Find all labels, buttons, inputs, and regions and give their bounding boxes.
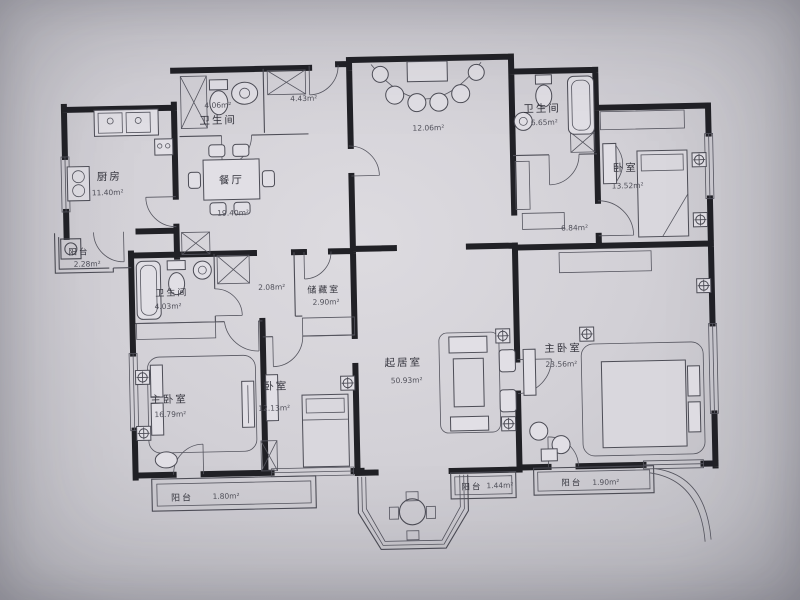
pillow-icon — [687, 366, 700, 396]
room-label-balcony-br: 阳台 — [561, 477, 582, 488]
room-label-kitchen: 厨房 — [97, 170, 122, 184]
room-area-balcony-br: 1.90m² — [592, 477, 619, 487]
room-label-bath-right: 卫生间 — [523, 102, 561, 116]
room-area-bath-mid: 4.03m² — [154, 302, 181, 312]
toilet-tank-icon — [209, 80, 227, 90]
stool-icon — [155, 452, 177, 468]
chair-icon — [530, 422, 548, 440]
sofa-seat-icon — [449, 336, 487, 353]
room-area-bedroom-mid: 12.13m² — [258, 403, 290, 413]
room-area-storage: 2.90m² — [312, 297, 339, 307]
room-label-bedroom-right: 卧室 — [613, 161, 638, 175]
stool-icon — [468, 64, 484, 80]
room-area-hall-mid: 2.08m² — [258, 282, 285, 292]
side-table-icon — [496, 329, 510, 343]
room-label-balcony-bm: 阳台 — [461, 481, 482, 492]
nightstand-icon — [341, 376, 355, 390]
room-area-master-right: 23.56m² — [545, 359, 577, 369]
floor-plan-photo: 厨房 11.40m² 阳台 2.28m² 4.06m² 卫生间 4.43m² 餐… — [0, 0, 800, 600]
room-area-balcony-bm: 1.44m² — [486, 481, 513, 491]
pillow-icon — [150, 365, 163, 397]
nightstand-icon — [135, 370, 149, 384]
room-label-bath-top: 卫生间 — [199, 113, 237, 127]
bathtub-icon — [567, 76, 594, 135]
room-label-master-left: 主卧室 — [150, 392, 188, 406]
sofa-seat-icon — [450, 416, 488, 431]
room-area-bedroom-right: 13.52m² — [612, 181, 644, 191]
toilet-tank-icon — [535, 75, 551, 84]
stool-icon — [386, 86, 404, 104]
pillow-icon — [151, 403, 164, 435]
washbasin-icon — [193, 261, 211, 279]
bed-icon — [302, 394, 349, 467]
toilet-tank-icon — [167, 260, 185, 269]
nightstand-icon — [692, 153, 706, 167]
room-area-master-left: 16.79m² — [154, 410, 186, 420]
room-area-hall-right: 6.84m² — [561, 223, 588, 233]
room-label-bedroom-mid: 卧室 — [263, 379, 288, 393]
nightstand-icon — [697, 278, 711, 292]
stool-icon — [372, 66, 388, 82]
bed-icon — [637, 150, 689, 237]
table-icon — [407, 61, 447, 82]
nightstand-icon — [580, 327, 594, 341]
floor-plan-canvas: 厨房 11.40m² 阳台 2.28m² 4.06m² 卫生间 4.43m² 餐… — [0, 0, 800, 600]
stool-icon — [408, 93, 426, 111]
chair-icon — [209, 145, 225, 157]
nightstand-icon — [693, 213, 707, 227]
room-label-living: 起居室 — [384, 356, 422, 370]
room-area-kitchen: 11.40m² — [92, 188, 124, 198]
room-label-bath-mid: 卫生间 — [155, 286, 188, 299]
room-label-dining: 餐厅 — [219, 173, 244, 187]
room-area-balcony-bl: 1.80m² — [212, 491, 239, 501]
chair-icon — [262, 171, 274, 187]
pillow-icon — [688, 402, 701, 432]
stool-icon — [452, 84, 470, 102]
chair-icon — [188, 172, 200, 188]
nightstand-icon — [137, 426, 151, 440]
room-area-living: 50.93m² — [391, 376, 423, 386]
room-area-hall-entry: 4.43m² — [290, 94, 317, 104]
armchair-icon — [499, 350, 515, 372]
small-table-icon — [541, 449, 557, 461]
room-label-storage: 储藏室 — [307, 283, 340, 296]
room-area-bath-right: 6.65m² — [531, 118, 558, 128]
room-area-bath-top: 4.06m² — [204, 100, 231, 110]
bed-mattress-icon — [601, 360, 687, 448]
room-area-balcony-left: 2.28m² — [74, 259, 101, 269]
room-label-balcony-left: 阳台 — [68, 246, 89, 257]
side-table-icon — [501, 417, 515, 431]
stool-icon — [430, 93, 448, 111]
chair-icon — [233, 144, 249, 156]
stove-icon — [67, 166, 90, 200]
room-area-dining: 19.40m² — [217, 208, 249, 218]
washbasin-icon — [231, 82, 257, 105]
room-area-terrace: 12.06m² — [412, 123, 444, 133]
tv-cabinet-icon — [523, 349, 536, 395]
room-label-master-right: 主卧室 — [544, 341, 582, 355]
room-label-balcony-bl: 阳台 — [171, 491, 193, 503]
armchair-icon — [500, 390, 516, 412]
coffee-table-icon — [453, 358, 484, 407]
